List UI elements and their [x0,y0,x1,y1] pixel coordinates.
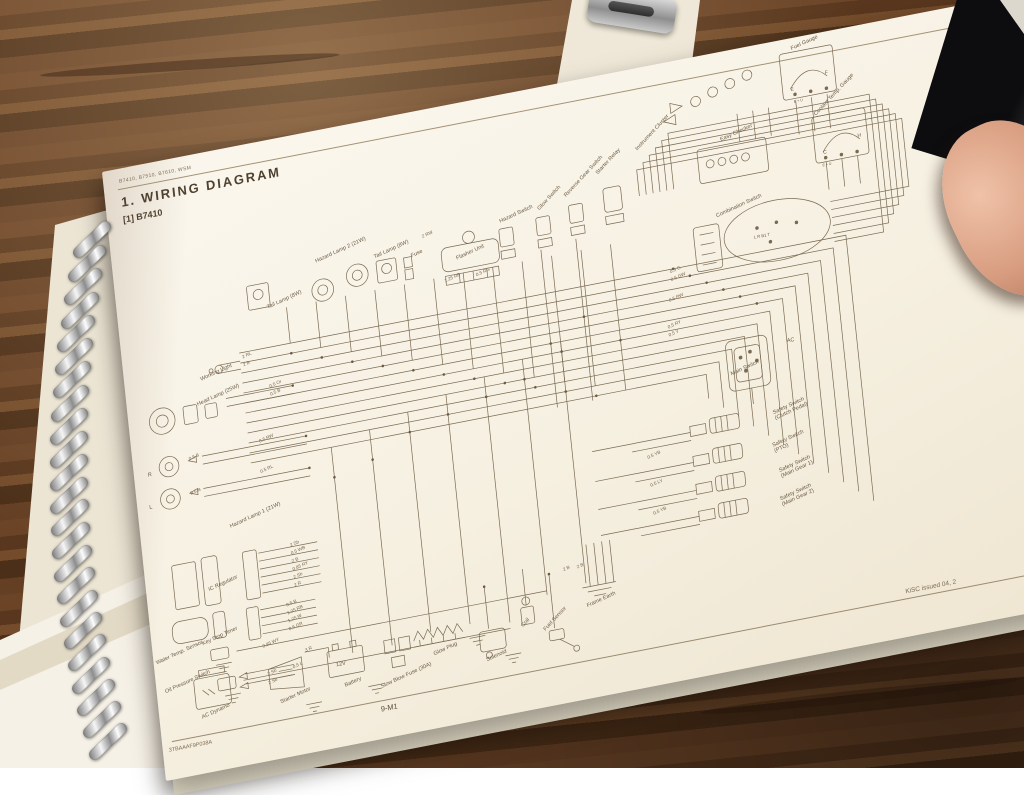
junction-dot [371,458,374,461]
junction-dot [523,378,526,381]
fuel-gauge-high-mark: F [825,70,829,77]
junction-dot [739,295,742,298]
coolant-gauge-high-mark: H [857,132,862,139]
junction-dot [442,373,445,376]
junction-dot [308,466,311,469]
junction-dot [305,434,308,437]
junction-dot [408,431,411,434]
junction-dot [564,390,567,393]
coolant-gauge-low-mark: C [823,149,828,156]
junction-dot [320,356,323,359]
junction-dot [412,369,415,372]
junction-dot [483,585,486,588]
combination-switch-terminals: L R B1 T [754,232,771,240]
junction-dot [333,476,336,479]
diagram-label: R [148,472,153,479]
junction-dot [503,381,506,384]
junction-dot [619,339,622,342]
junction-dot [583,315,586,318]
fuel-gauge-terminals: E + U [794,98,804,104]
coolant-gauge-terminals: E + U [822,162,832,168]
junction-dot [534,386,537,389]
clamp-slot [608,0,655,17]
junction-dot [381,364,384,367]
junction-dot [290,352,293,355]
junction-dot [705,281,708,284]
junction-dot [755,302,758,305]
junction-dot [595,394,598,397]
diagram-label: L [149,505,153,512]
junction-dot [560,350,563,353]
battery-voltage: 12V [336,660,347,668]
junction-dot [473,377,476,380]
junction-dot [447,413,450,416]
junction-dot [549,342,552,345]
junction-dot [548,573,551,576]
junction-dot [351,360,354,363]
junction-dot [485,395,488,398]
junction-dot [722,288,725,291]
fuel-gauge-low-mark: E [790,86,795,93]
junction-dot [688,274,691,277]
junction-dot [291,384,294,387]
